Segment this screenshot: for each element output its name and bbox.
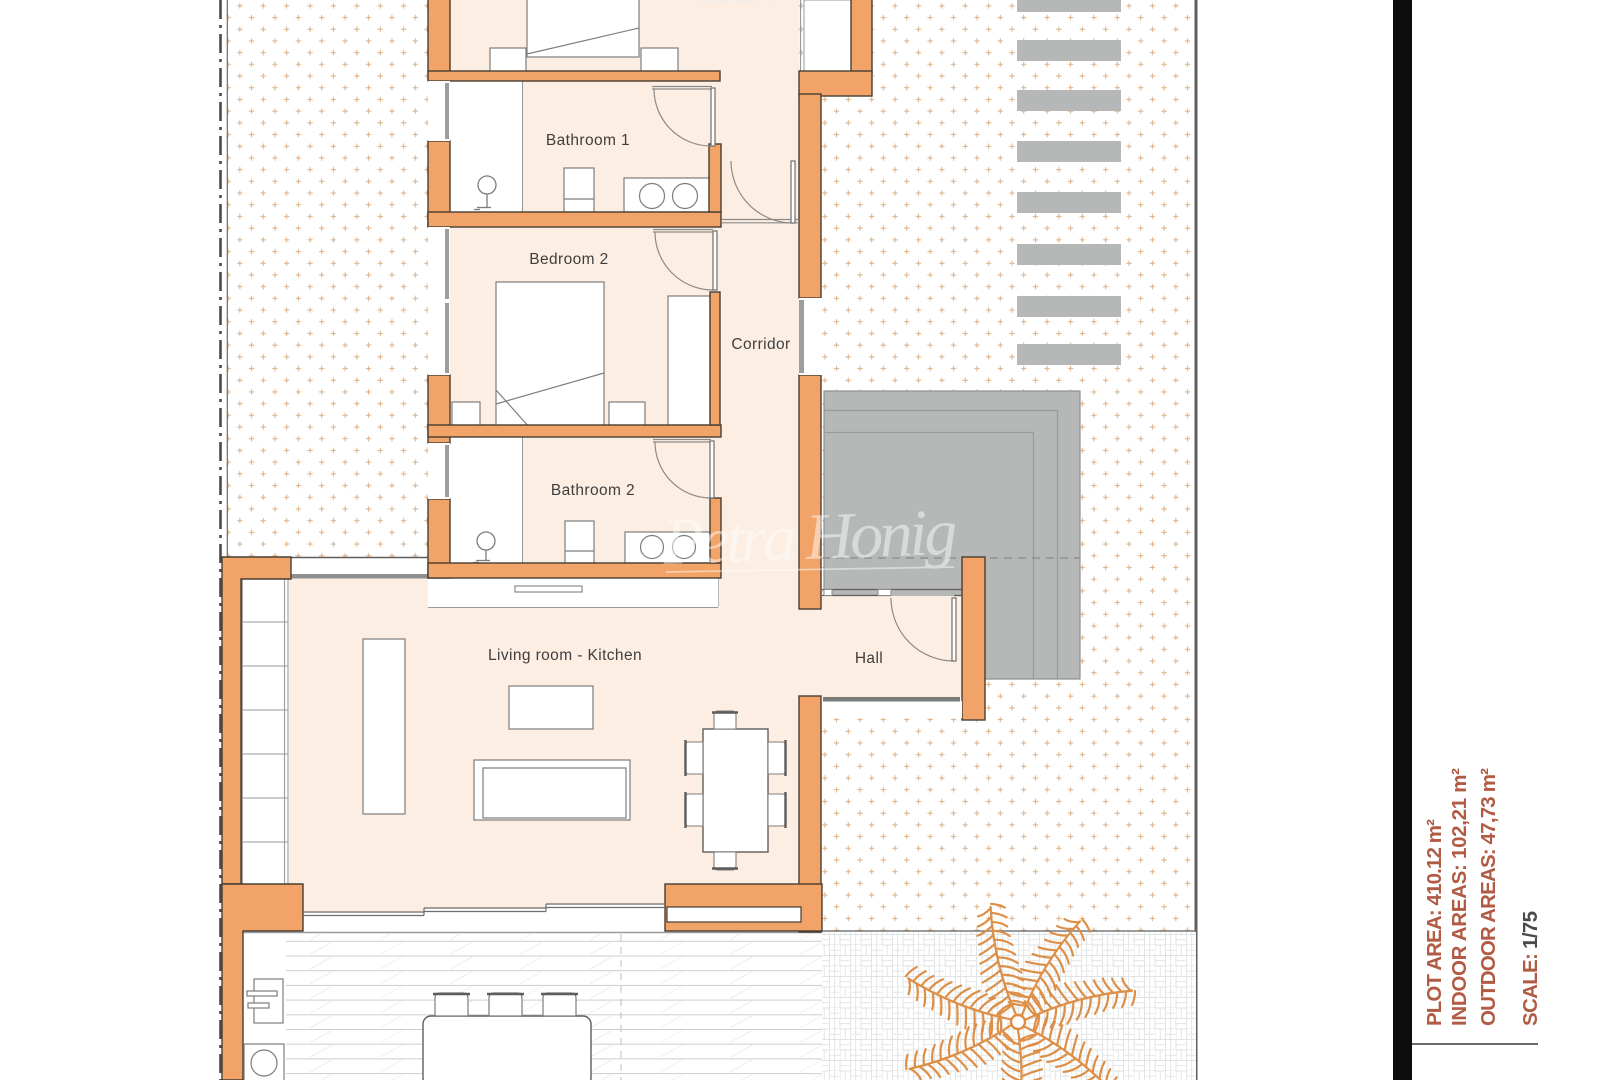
svg-text:Hall: Hall (855, 650, 883, 667)
svg-text:Living room - Kitchen: Living room - Kitchen (488, 647, 642, 664)
svg-text:Petra Honig: Petra Honig (661, 496, 958, 579)
svg-text:Bedroom 1: Bedroom 1 (700, 0, 779, 7)
svg-text:OUTDOOR AREAS: 47,73 m²: OUTDOOR AREAS: 47,73 m² (1477, 768, 1500, 1026)
svg-text:INDOOR AREAS: 102,21 m²: INDOOR AREAS: 102,21 m² (1448, 768, 1471, 1026)
svg-text:SCALE: 1/75: SCALE: 1/75 (1519, 911, 1542, 1026)
svg-text:Bathroom 2: Bathroom 2 (551, 482, 635, 499)
svg-text:PLOT AREA: 410.12 m²: PLOT AREA: 410.12 m² (1423, 819, 1446, 1026)
svg-text:Bedroom 2: Bedroom 2 (529, 251, 608, 268)
svg-text:Bathroom 1: Bathroom 1 (546, 132, 630, 149)
svg-text:Corridor: Corridor (731, 336, 790, 353)
